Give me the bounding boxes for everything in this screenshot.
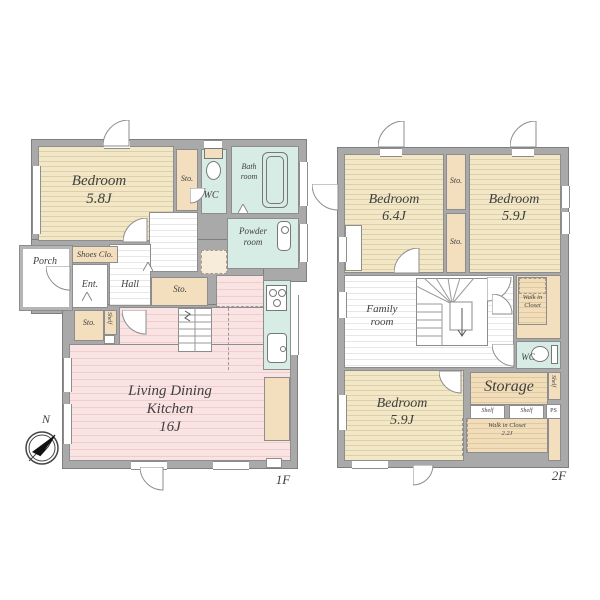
- f1-hall-label: Hall: [108, 279, 152, 291]
- f1-door-bedroom: [123, 218, 148, 243]
- f2-door-bedroom-64: [394, 248, 420, 274]
- f1-ldk-label: Living Dining Kitchen 16J: [108, 382, 232, 436]
- f2-storage-upper-label: Sto.: [443, 176, 469, 186]
- f1-shelf-left-label: Shelf: [106, 312, 112, 324]
- f1-bedroom-size: 5.8J: [44, 190, 154, 208]
- f2-floor-label: 2F: [544, 468, 574, 484]
- f2-toilet-tank-icon: [551, 345, 558, 364]
- f2-window-left1: [338, 237, 347, 262]
- f2-bedroom-59-top-label: Bedroom 5.9J: [474, 192, 554, 226]
- f2-bedroom-64-label: Bedroom 6.4J: [354, 192, 434, 226]
- f1-stairs: [178, 308, 212, 352]
- f1-stove-icon: [266, 285, 287, 311]
- f1-small-box: [105, 336, 114, 343]
- f1-bedroom-label: Bedroom 5.8J: [44, 172, 154, 208]
- f2-wic-bottom-name: Walk in Closet: [483, 422, 531, 430]
- f2-ps-label: PS: [547, 408, 560, 415]
- f1-toilet-bowl-icon: [206, 161, 221, 180]
- f1-sink-icon: [277, 221, 291, 251]
- f2-bedroom-64-counter: [346, 226, 361, 270]
- f1-window-bath-right: [299, 162, 308, 206]
- f2-wc-label: WC: [516, 352, 540, 363]
- f2-door-exterior-top-right: [510, 121, 537, 148]
- f1-door-porch-entrance: [46, 266, 71, 291]
- f1-porch-label: Porch: [22, 256, 68, 268]
- f1-window-kitchen-right: [290, 295, 299, 355]
- f2-right-column: [549, 419, 560, 460]
- f2-bedroom-59-bottom-label: Bedroom 5.9J: [362, 396, 442, 430]
- f2-wic-top-label: Walk in Closet: [518, 294, 547, 310]
- f1-window-bedroom-left: [32, 166, 41, 234]
- f2-bedroom-59-bottom-size: 5.9J: [362, 413, 442, 430]
- f1-window-ldk-bottom2: [213, 461, 249, 470]
- f1-hall-marker: [143, 262, 153, 271]
- f1-toilet-tank-icon: [204, 148, 223, 159]
- f2-family-room-label: Family room: [356, 303, 408, 329]
- f2-wic-top-dashed: [519, 278, 546, 294]
- f1-door-exterior-bottom: [140, 467, 164, 491]
- f1-washing-machine-box: [201, 250, 227, 274]
- f1-bathtub-icon: [262, 152, 288, 208]
- f2-bedroom-64-name: Bedroom: [354, 192, 434, 209]
- f1-storage-top-label: Sto.: [172, 174, 202, 184]
- f1-door-exterior-top: [103, 120, 130, 147]
- f1-window-ldk-left1: [63, 358, 72, 392]
- f1-shoes-closet-door1: [75, 262, 96, 274]
- f2-bedroom-59-top-size: 5.9J: [474, 209, 554, 226]
- f2-door-bedroom-59-bottom: [439, 371, 462, 394]
- f1-hall-corridor: [150, 213, 197, 271]
- f1-kitchen-sink-icon: [267, 333, 287, 363]
- f1-meter-box: [267, 459, 281, 467]
- f1-door-hall-ldk: [122, 310, 147, 335]
- f1-shoes-closet-label: Shoes Clo.: [71, 249, 119, 259]
- f2-door-exterior-top-left: [378, 121, 405, 148]
- f1-shoes-closet-door2: [96, 262, 117, 274]
- f1-storage-left-label: Sto.: [75, 318, 103, 328]
- f2-bedroom-59-bottom-name: Bedroom: [362, 396, 442, 413]
- compass-north-label: N: [38, 412, 54, 426]
- f2-door-exterior-left: [312, 184, 339, 211]
- f2-door-exterior-bottom: [413, 465, 434, 486]
- f2-window-left3: [338, 395, 347, 430]
- f2-bedroom-59-top-name: Bedroom: [474, 192, 554, 209]
- f2-window-top-gap2: [512, 148, 534, 157]
- f2-wic-bottom-size: 2.2J: [483, 430, 531, 438]
- f1-ldk-size: 16J: [108, 418, 232, 436]
- f2-window-left2: [338, 292, 347, 318]
- f1-powder-room-label: Powder room: [230, 226, 276, 248]
- f1-storage-center-label: Sto.: [162, 284, 198, 295]
- floor-plan-canvas: Bedroom 5.8J Sto. WC Bath room Powder ro…: [0, 0, 600, 600]
- f1-ldk-strip-upper: [217, 276, 263, 310]
- f1-bedroom-name: Bedroom: [44, 172, 154, 190]
- f2-shelf-right-label: Shelf: [550, 375, 556, 387]
- compass-icon: [20, 425, 66, 471]
- f1-window-powder-right: [299, 224, 308, 262]
- f2-stairs: [416, 278, 488, 346]
- f2-window-right1: [561, 186, 570, 208]
- f1-ldk-dashed-line-v: [228, 308, 229, 370]
- f1-bathroom-label: Bath room: [233, 162, 265, 181]
- f2-window-top-gap1: [380, 148, 402, 157]
- f2-bedroom-dashed-edge: [462, 418, 463, 456]
- f1-wc-label: WC: [196, 190, 226, 202]
- f2-shelf-box2-label: Shelf: [510, 408, 543, 415]
- f1-floor-label: 1F: [268, 472, 298, 488]
- f1-bath-door-marker: [238, 204, 248, 213]
- f2-window-right2: [561, 212, 570, 234]
- f2-wic-bottom-label: Walk in Closet 2.2J: [483, 422, 531, 438]
- f2-window-bottom: [352, 460, 388, 469]
- f2-shelf-box1-label: Shelf: [471, 408, 504, 415]
- f2-storage-room-label: Storage: [476, 377, 542, 396]
- f2-bedroom-64-size: 6.4J: [354, 209, 434, 226]
- f2-storage-lower-label: Sto.: [443, 237, 469, 247]
- f1-ldk-name: Living Dining Kitchen: [108, 382, 232, 418]
- f2-door-wic: [492, 294, 513, 315]
- f1-niche: [265, 378, 289, 440]
- f1-entrance-label: Ent.: [70, 279, 110, 291]
- f2-door-wc: [492, 344, 515, 367]
- f1-ldk-dashed-line-h: [217, 306, 263, 307]
- f1-entrance-step-marker: [82, 292, 92, 301]
